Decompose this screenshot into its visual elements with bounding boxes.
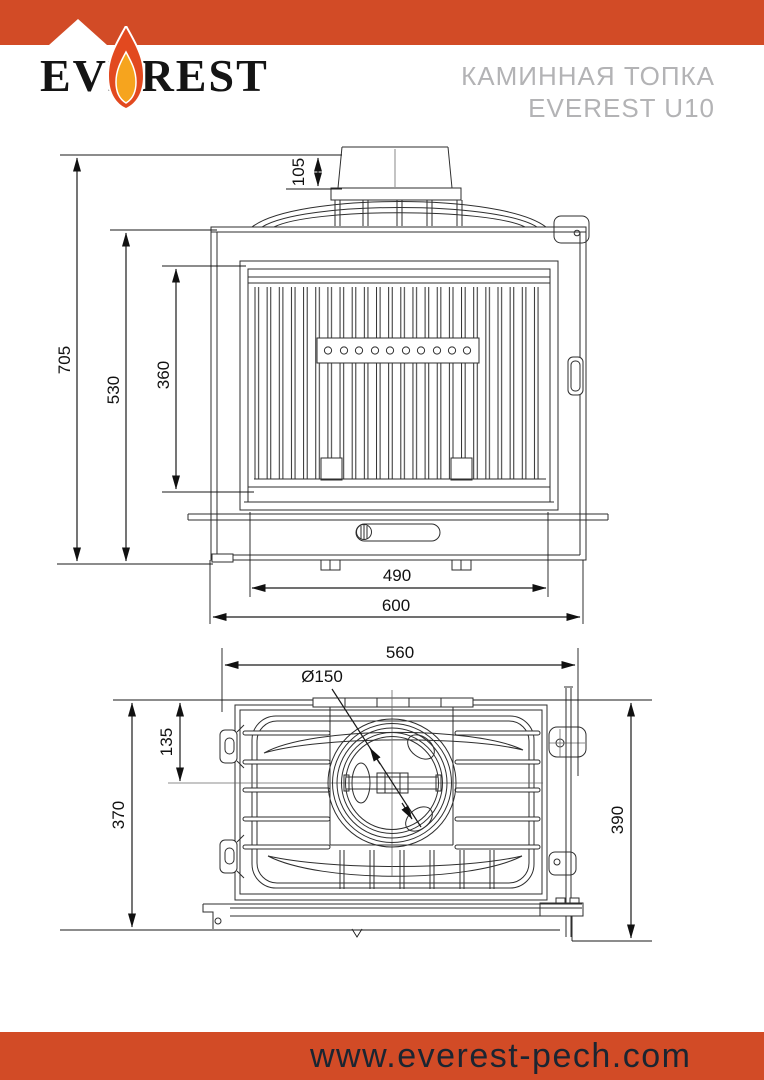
- flame-icon: [106, 26, 146, 110]
- front-rail: [188, 514, 608, 520]
- mount-tab: [554, 216, 589, 243]
- dim-label-total-height: 705: [55, 346, 74, 374]
- front-view-drawing: 705 530 360 105 490 600: [55, 147, 608, 624]
- feet: [212, 554, 471, 570]
- front-strip: [203, 904, 582, 929]
- dim-label-flue-collar-height: 105: [289, 158, 308, 186]
- top-view-drawing: 560 Ø150 135 370 390: [60, 643, 652, 941]
- dim-label-total-width: 600: [382, 596, 410, 615]
- notch-left: [321, 458, 342, 480]
- footer-accent-band: www.everest-pech.com: [0, 1032, 764, 1080]
- technical-drawing: 705 530 360 105 490 600: [0, 0, 764, 1080]
- website-url: www.everest-pech.com: [310, 1037, 691, 1076]
- dim-label-total-depth: 390: [608, 806, 627, 834]
- dim-label-flue-diameter: Ø150: [301, 667, 343, 686]
- air-holes-plate: [317, 338, 479, 363]
- dim-label-glass-height: 360: [154, 361, 173, 389]
- dim-label-top-width: 560: [386, 643, 414, 662]
- flue-collar: [331, 147, 461, 200]
- dim-label-inner-width: 490: [383, 566, 411, 585]
- door-sill: [244, 479, 554, 502]
- dim-label-body-height: 530: [104, 376, 123, 404]
- dim-label-body-depth: 370: [109, 801, 128, 829]
- spec-sheet-page: EVEREST КАМИННАЯ ТОПКА EVEREST U10: [0, 0, 764, 1080]
- top-view-dimensions: 560 Ø150 135 370 390: [60, 643, 652, 941]
- dome-top: [252, 200, 546, 227]
- ash-drawer: [356, 524, 440, 541]
- dim-label-flue-offset: 135: [157, 728, 176, 756]
- notch-right: [451, 458, 472, 480]
- door-latch: [568, 357, 583, 395]
- grill-bars: [254, 287, 546, 479]
